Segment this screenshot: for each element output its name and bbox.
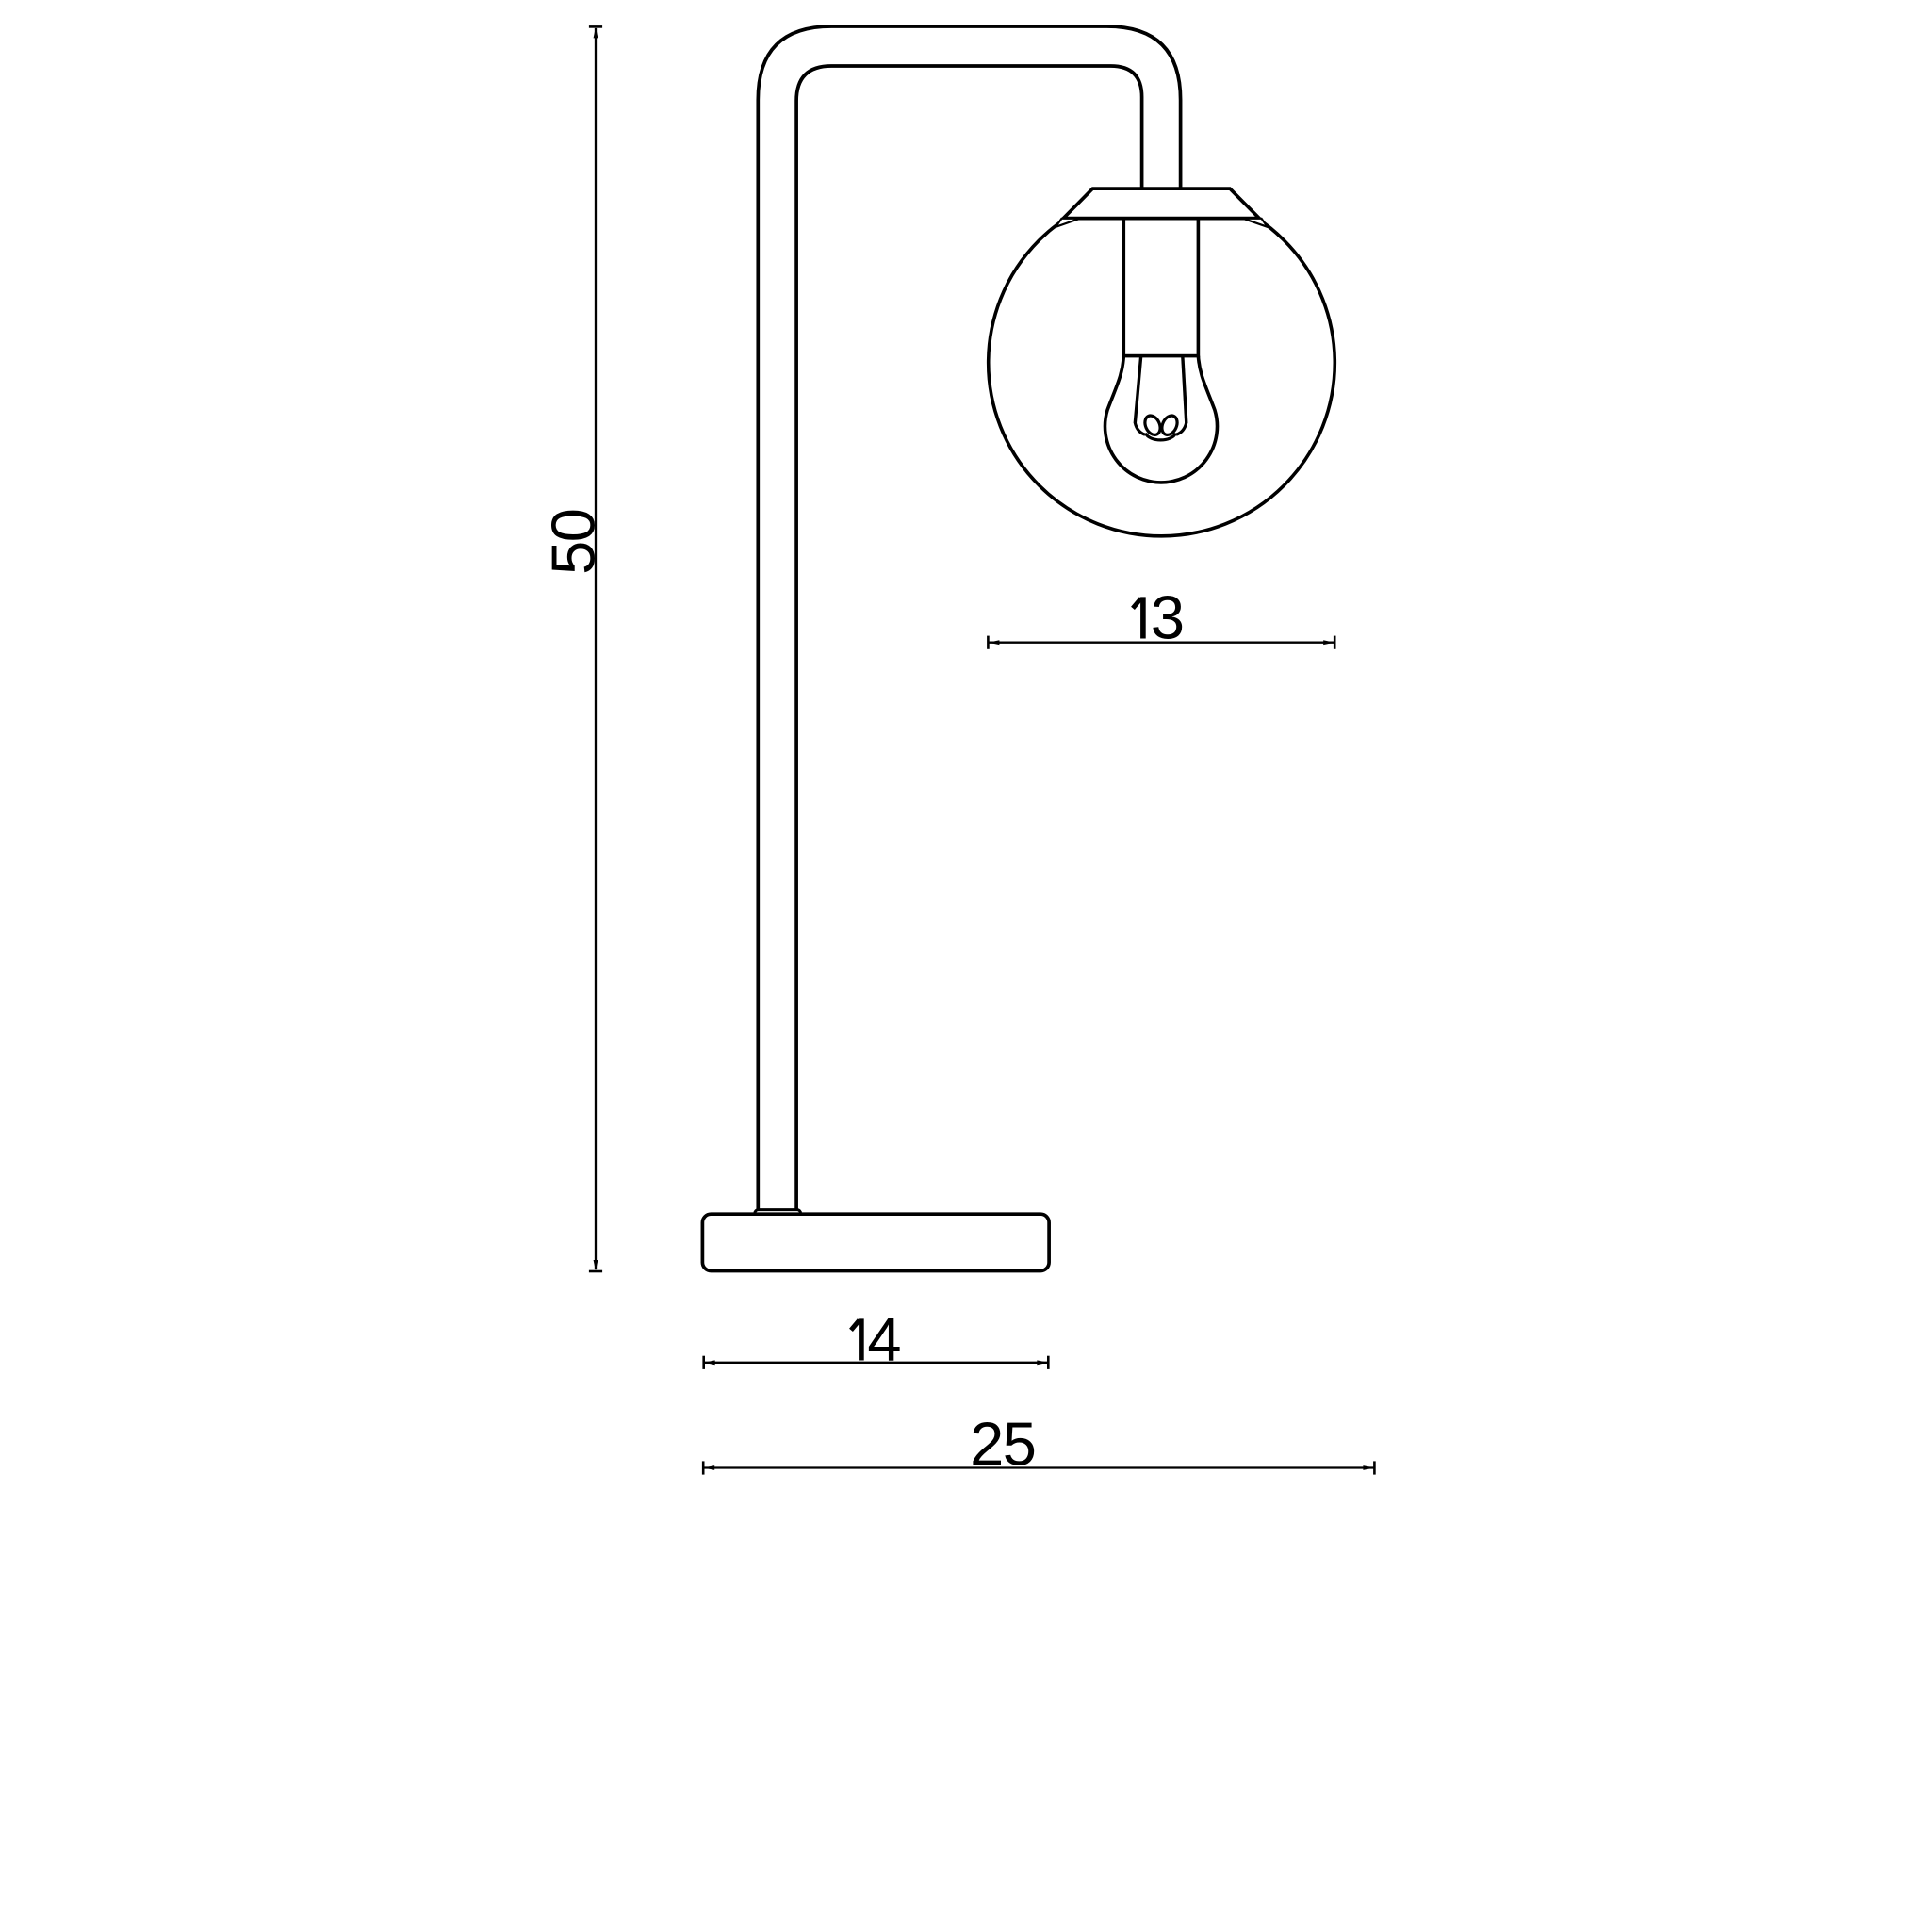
svg-text:4: 4 [867, 1305, 901, 1374]
svg-text:25: 25 [970, 1409, 1035, 1478]
svg-text:50: 50 [539, 510, 608, 575]
svg-text:3: 3 [1151, 583, 1185, 652]
